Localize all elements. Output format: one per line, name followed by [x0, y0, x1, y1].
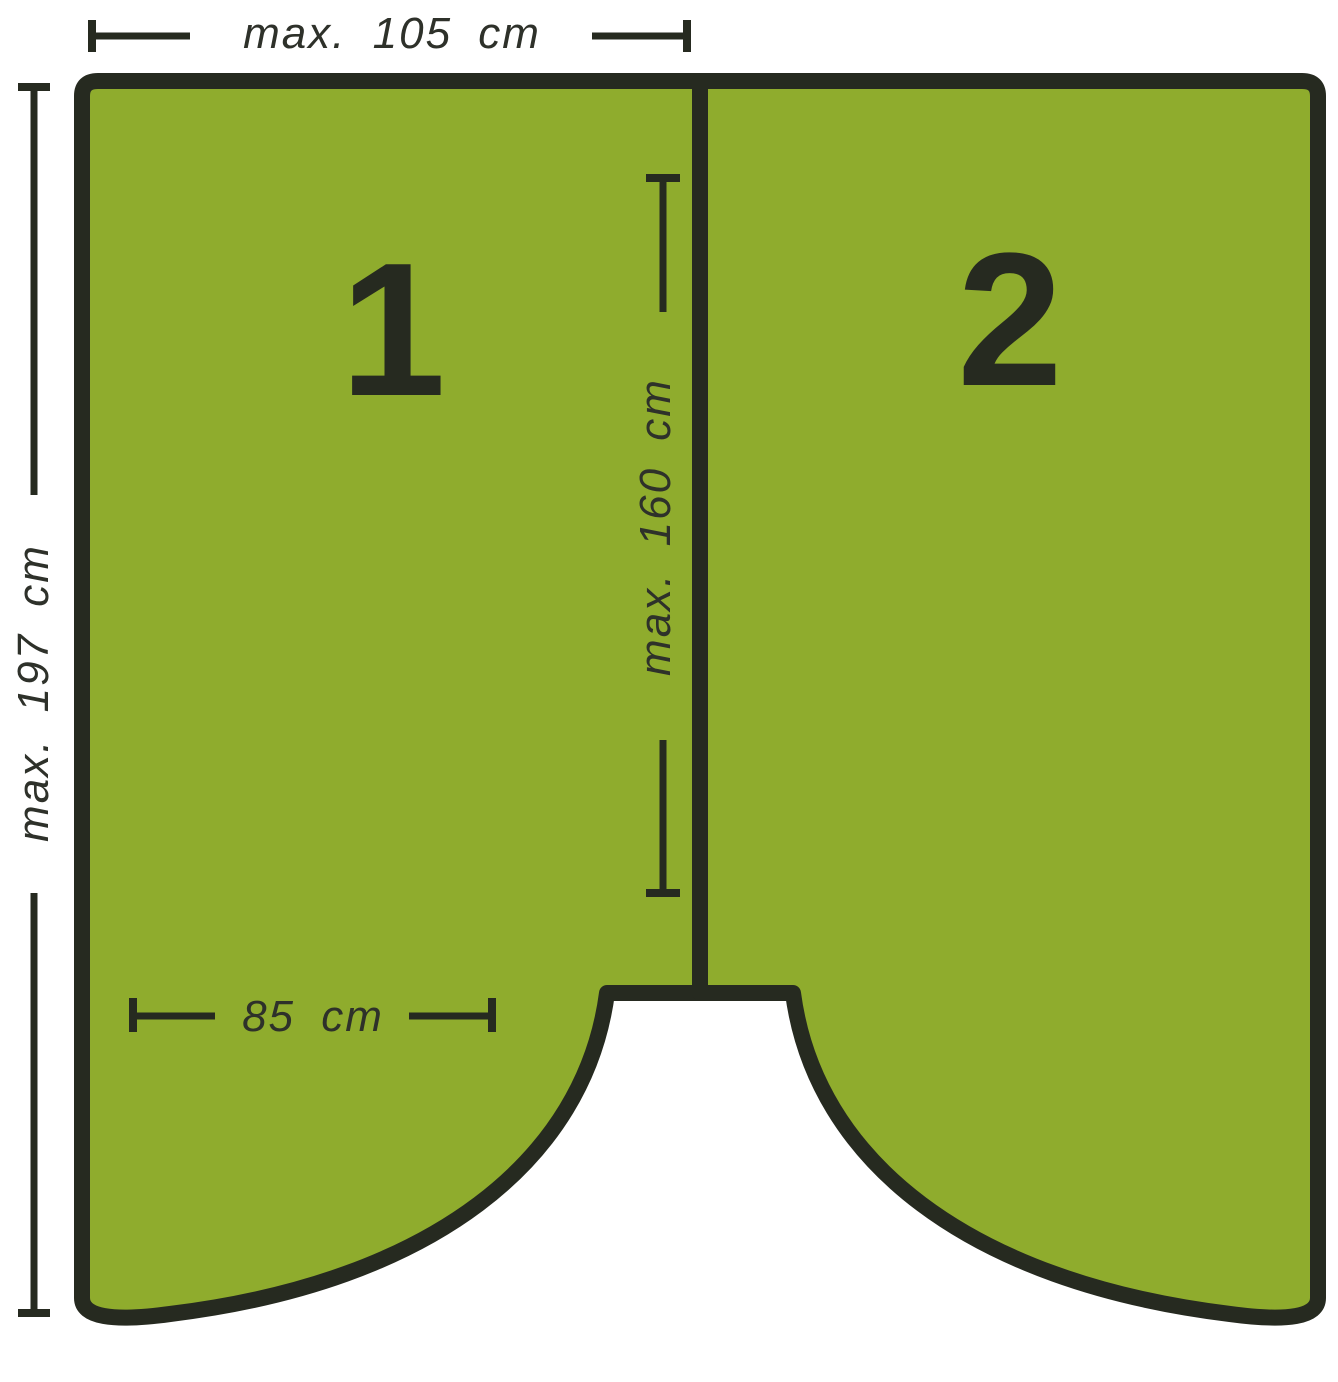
panel-2-label: 2 [957, 214, 1063, 426]
dimension-bottom-width-label: 85 cm [242, 992, 384, 1041]
dimension-top-width: max. 105 cm [92, 9, 687, 58]
diagram-canvas: 1 2 max. 105 cm max. 197 cm max. 16 [0, 0, 1338, 1382]
dimension-top-width-label: max. 105 cm [243, 9, 541, 58]
panel-2: 2 [700, 81, 1318, 1318]
dimension-center-height-label: max. 160 cm [631, 378, 680, 676]
dimension-left-height-label: max. 197 cm [9, 544, 58, 842]
panel-1: 1 [82, 81, 700, 1318]
panel-1-label: 1 [340, 224, 446, 436]
awning-panel-diagram: 1 2 max. 105 cm max. 197 cm max. 16 [0, 0, 1338, 1382]
dimension-left-height: max. 197 cm [9, 87, 58, 1313]
